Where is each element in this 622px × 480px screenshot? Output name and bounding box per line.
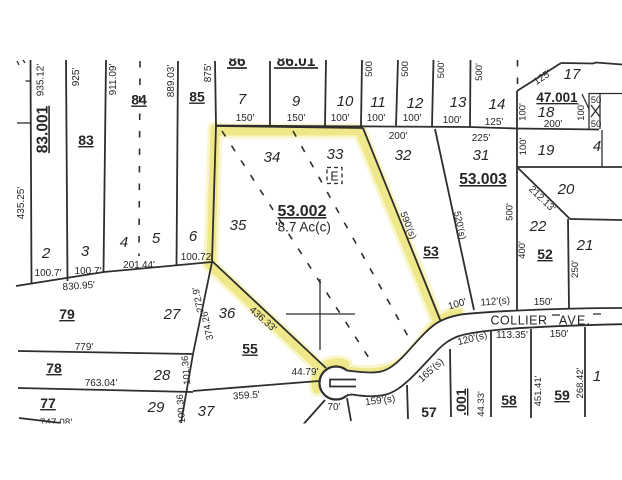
svg-text:250': 250' <box>570 260 581 278</box>
svg-text:435.25': 435.25' <box>16 187 27 220</box>
svg-text:83.001: 83.001 <box>34 105 51 153</box>
svg-text:37: 37 <box>198 403 215 420</box>
svg-text:6: 6 <box>189 228 198 245</box>
svg-text:100': 100' <box>518 137 529 155</box>
svg-text:150': 150' <box>236 113 255 124</box>
svg-text:10: 10 <box>337 93 354 110</box>
svg-text:53.002: 53.002 <box>278 203 327 220</box>
svg-text:.001: .001 <box>453 388 469 415</box>
svg-text:9: 9 <box>292 93 301 110</box>
svg-text:400': 400' <box>517 241 528 259</box>
svg-text:34: 34 <box>264 149 281 166</box>
svg-text:35: 35 <box>230 217 247 234</box>
svg-text:150': 150' <box>534 297 553 308</box>
svg-text:7: 7 <box>238 91 247 108</box>
svg-text:47.001: 47.001 <box>536 90 578 105</box>
svg-text:4: 4 <box>593 138 601 155</box>
svg-text:50: 50 <box>591 95 602 106</box>
svg-text:113.35': 113.35' <box>496 330 528 341</box>
svg-text:'8.7 Ac(c): '8.7 Ac(c) <box>275 220 331 235</box>
svg-text:COLLIER: COLLIER <box>491 314 548 328</box>
svg-text:500': 500' <box>474 63 485 81</box>
svg-text:4: 4 <box>120 234 128 251</box>
svg-text:150': 150' <box>550 329 569 340</box>
svg-text:13: 13 <box>450 94 467 111</box>
svg-text:100': 100' <box>517 103 528 121</box>
svg-text:875': 875' <box>203 64 214 83</box>
svg-text:5: 5 <box>152 230 161 247</box>
svg-text:150': 150' <box>287 113 306 124</box>
svg-text:911.09': 911.09' <box>108 64 119 96</box>
svg-text:125': 125' <box>485 117 504 128</box>
svg-text:20: 20 <box>557 181 575 198</box>
svg-text:57: 57 <box>421 404 437 420</box>
svg-text:59: 59 <box>554 387 570 403</box>
svg-text:83: 83 <box>78 132 94 148</box>
svg-text:28: 28 <box>153 367 171 384</box>
svg-text:44.79': 44.79' <box>292 367 319 378</box>
svg-text:500': 500' <box>436 60 447 78</box>
svg-text:100': 100' <box>403 113 422 124</box>
svg-text:889.03': 889.03' <box>166 65 177 98</box>
svg-text:27: 27 <box>163 306 181 323</box>
svg-text:763.04': 763.04' <box>85 378 118 389</box>
svg-text:50: 50 <box>591 119 602 130</box>
svg-text:29: 29 <box>147 399 165 416</box>
svg-text:78: 78 <box>46 360 62 376</box>
svg-text:200': 200' <box>544 119 563 130</box>
svg-text:100': 100' <box>367 113 386 124</box>
svg-text:100.72: 100.72 <box>181 252 212 263</box>
svg-text:500: 500 <box>364 61 375 77</box>
svg-text:70': 70' <box>327 402 340 413</box>
svg-text:33: 33 <box>327 146 344 163</box>
svg-text:500: 500 <box>400 61 411 77</box>
svg-text:19: 19 <box>538 142 555 159</box>
svg-text:58: 58 <box>501 392 517 408</box>
svg-text:17: 17 <box>564 66 581 83</box>
svg-text:925': 925' <box>71 68 82 87</box>
svg-text:500': 500' <box>504 203 515 221</box>
svg-text:53: 53 <box>423 243 439 259</box>
svg-text:55: 55 <box>242 341 258 357</box>
svg-text:1: 1 <box>593 368 601 385</box>
svg-text:44.33': 44.33' <box>476 391 487 417</box>
svg-text:3: 3 <box>81 243 90 260</box>
svg-text:85: 85 <box>189 89 205 105</box>
svg-text:AVE.: AVE. <box>559 314 591 328</box>
svg-text:79: 79 <box>59 306 75 322</box>
svg-text:100': 100' <box>331 113 350 124</box>
svg-text:31: 31 <box>473 147 490 164</box>
svg-text:100.7': 100.7' <box>35 268 62 279</box>
svg-text:359.5': 359.5' <box>233 390 261 403</box>
svg-text:84: 84 <box>131 92 147 108</box>
svg-text:11: 11 <box>370 94 386 111</box>
svg-text:32: 32 <box>395 147 412 164</box>
svg-text:12: 12 <box>407 95 424 112</box>
svg-text:E: E <box>330 170 338 184</box>
svg-text:53.003: 53.003 <box>459 171 507 188</box>
svg-text:36: 36 <box>219 305 236 322</box>
svg-text:14: 14 <box>489 96 506 113</box>
svg-text:100': 100' <box>576 103 587 121</box>
svg-text:77: 77 <box>40 395 56 411</box>
svg-text:2: 2 <box>41 245 51 262</box>
svg-text:451.41': 451.41' <box>533 375 544 406</box>
svg-text:52: 52 <box>537 246 553 262</box>
svg-text:225': 225' <box>472 133 491 144</box>
svg-text:200': 200' <box>389 131 408 142</box>
svg-text:22: 22 <box>529 218 547 235</box>
svg-text:935.12': 935.12' <box>35 64 46 97</box>
svg-text:830.95': 830.95' <box>62 280 95 293</box>
svg-text:21: 21 <box>576 237 594 254</box>
svg-text:779': 779' <box>75 342 94 353</box>
svg-text:100': 100' <box>443 115 462 126</box>
